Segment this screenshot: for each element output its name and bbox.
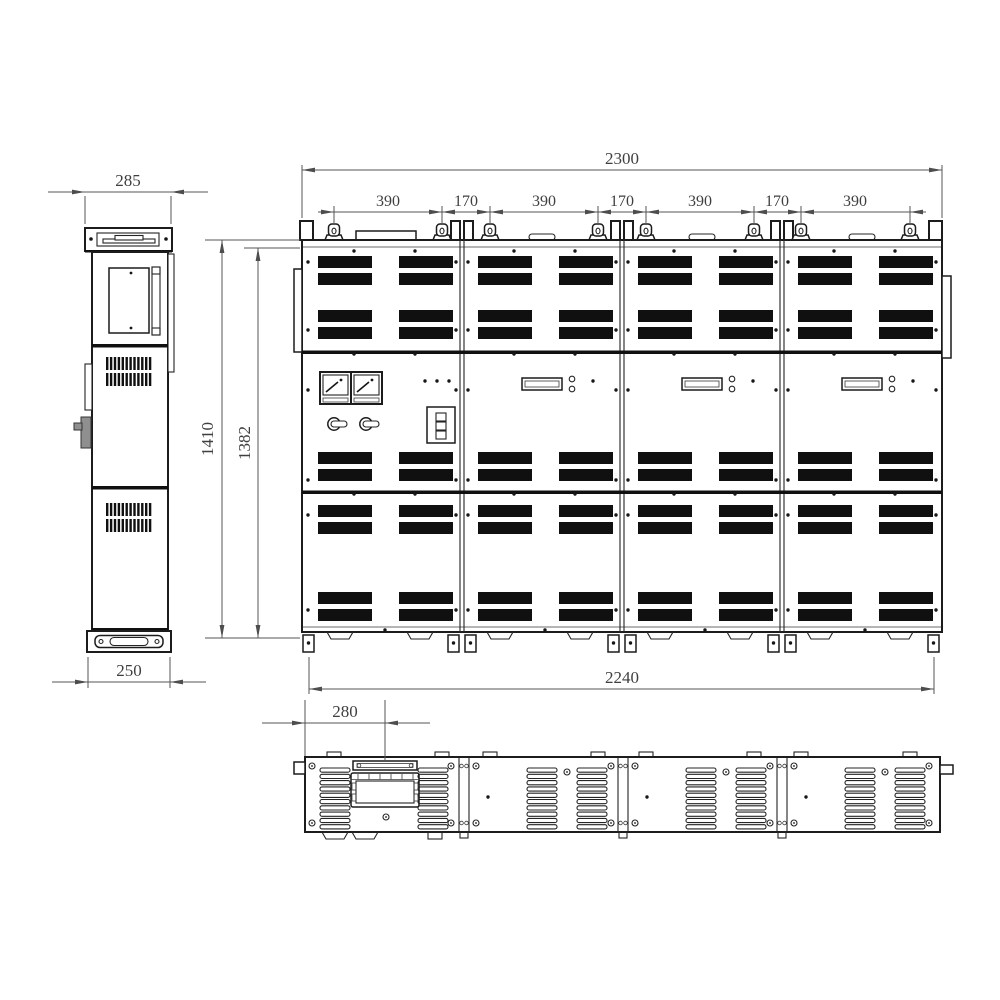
top-end-post (300, 221, 313, 240)
front-view (294, 221, 951, 652)
side-body (92, 252, 168, 632)
dim-label-2300: 2300 (605, 149, 639, 168)
side-latch-knob (74, 423, 82, 430)
side-base (87, 631, 171, 652)
side-door-edge (168, 254, 174, 372)
dim-label-1382: 1382 (235, 426, 254, 460)
dim-label-280: 280 (332, 702, 358, 721)
drawing-canvas: 2300 390 170 390 170 390 170 390 2240 14… (0, 0, 1000, 1000)
left-hinge-strip (294, 269, 302, 352)
dim-base-width: 2240 (309, 657, 934, 694)
right-hinge-strip (942, 276, 951, 358)
dim-label-1410: 1410 (198, 422, 217, 456)
mounting-feet (303, 635, 939, 652)
dim-label-170-1: 170 (454, 193, 478, 210)
meter-panel (320, 372, 382, 404)
dim-lug-spacing-chain: 390 170 390 170 390 170 390 (318, 193, 926, 224)
top-handle-plate (353, 761, 417, 770)
top-end-post (929, 221, 942, 240)
front-cabinet-body (302, 240, 942, 632)
technical-drawing: 2300 390 170 390 170 390 170 390 2240 14… (0, 0, 1000, 1000)
dim-top-view-offset: 280 (262, 700, 430, 760)
top-cable-tray (356, 231, 416, 240)
side-view (74, 228, 174, 652)
top-right-tab (940, 765, 953, 774)
dim-label-170-2: 170 (610, 193, 634, 210)
dim-side-top-width: 285 (48, 171, 208, 224)
dim-label-2240: 2240 (605, 668, 639, 687)
dim-label-170-3: 170 (765, 193, 789, 210)
dim-label-250: 250 (116, 661, 142, 680)
dim-label-390-4: 390 (843, 193, 867, 210)
dim-label-390-1: 390 (376, 193, 400, 210)
side-latch (81, 417, 91, 448)
dim-side-base-width: 250 (52, 657, 206, 688)
dim-door-height: 1382 (235, 248, 300, 638)
dim-label-285: 285 (115, 171, 141, 190)
dim-label-390-2: 390 (532, 193, 556, 210)
dim-label-390-3: 390 (688, 193, 712, 210)
top-view (294, 752, 953, 839)
side-hinge (85, 364, 92, 410)
top-left-tab (294, 762, 305, 774)
